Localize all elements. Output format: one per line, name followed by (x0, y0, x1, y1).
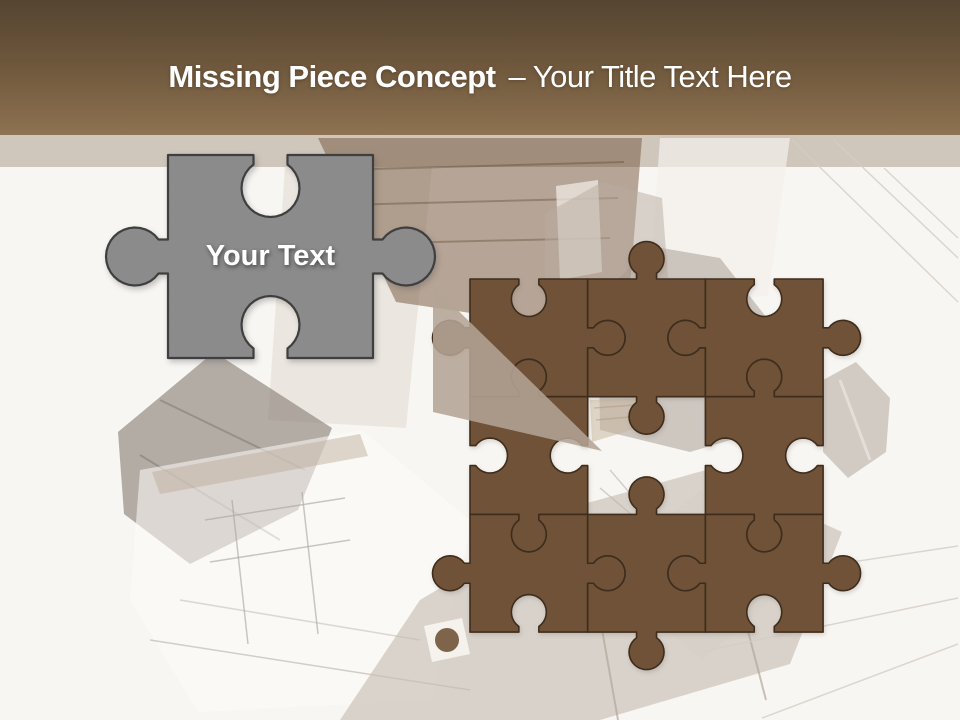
bg-blueprint-line (852, 546, 958, 562)
title-bar: Missing Piece Concept – Your Title Text … (0, 0, 960, 135)
slide-title-sub: – Your Title Text Here (509, 59, 792, 95)
slide-title-main: Missing Piece Concept (168, 59, 495, 95)
bg-blueprint-line (884, 168, 958, 238)
puzzle-grid (433, 242, 861, 670)
slide: Missing Piece Concept – Your Title Text … (0, 0, 960, 720)
bg-chimney (435, 628, 459, 652)
